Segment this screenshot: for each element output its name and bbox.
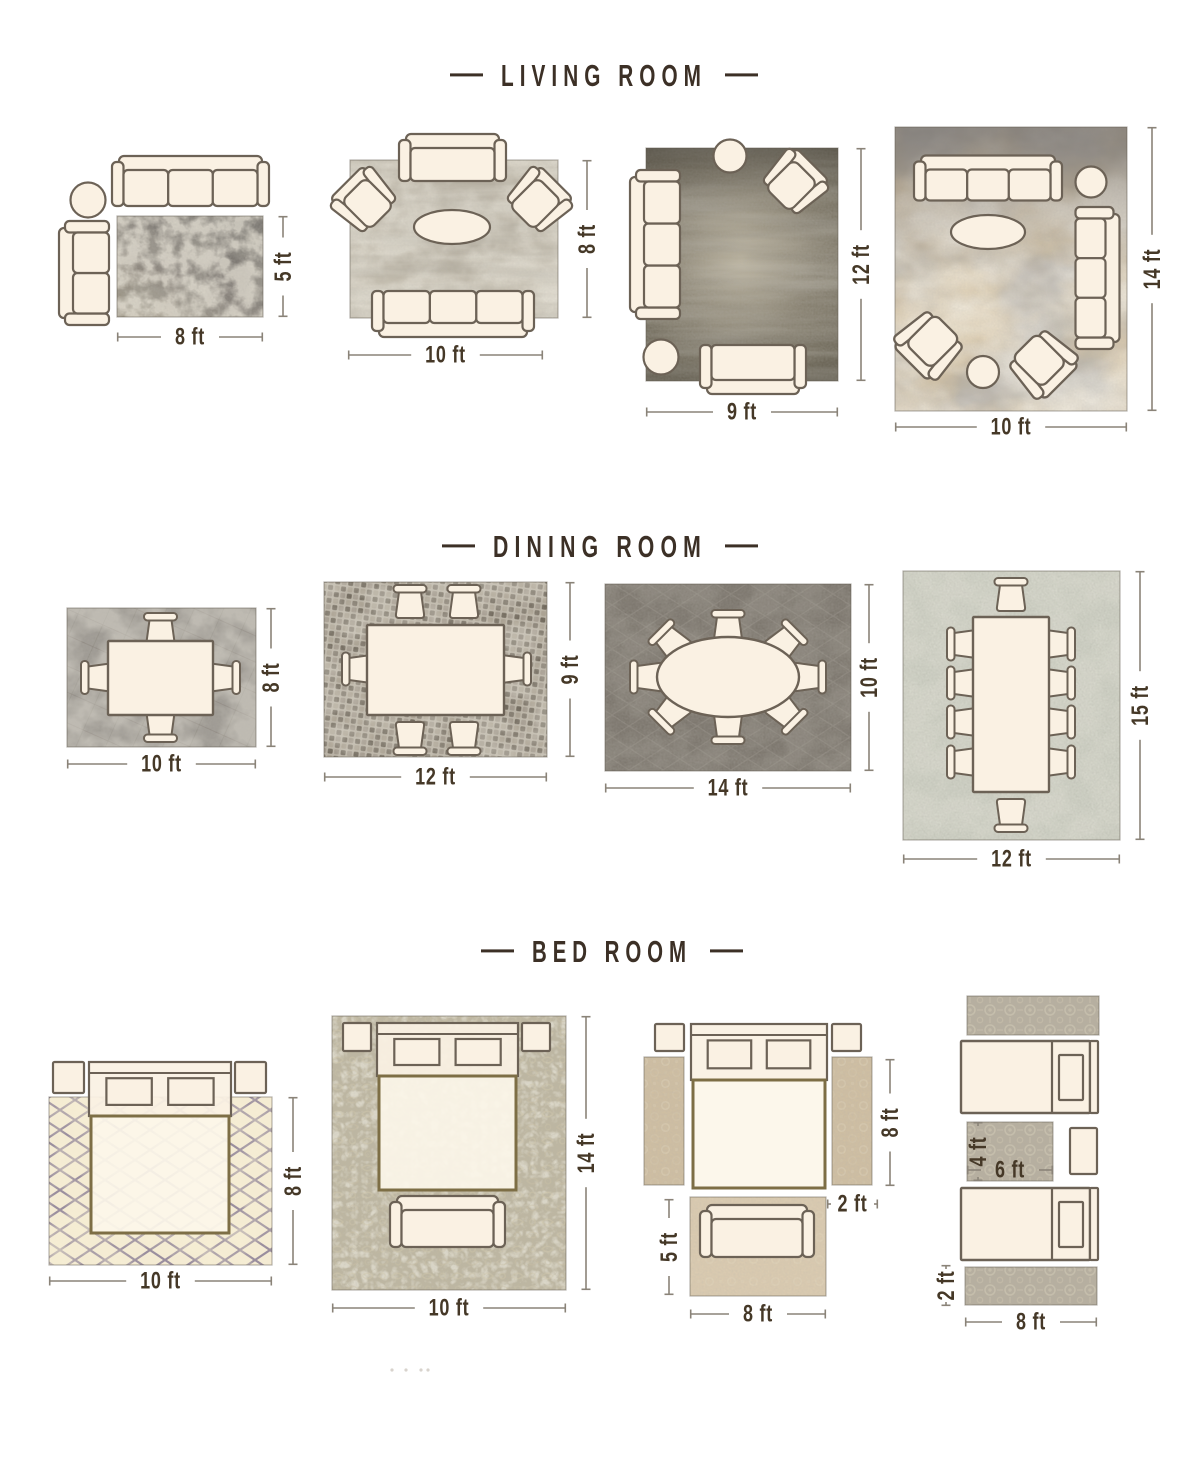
svg-text:10 ft: 10 ft bbox=[141, 751, 182, 777]
svg-text:8 ft: 8 ft bbox=[878, 1108, 904, 1138]
svg-text:8 ft: 8 ft bbox=[575, 224, 601, 254]
svg-text:10 ft: 10 ft bbox=[991, 414, 1032, 440]
svg-text:5 ft: 5 ft bbox=[657, 1232, 683, 1262]
svg-text:8 ft: 8 ft bbox=[281, 1166, 307, 1196]
svg-text:10 ft: 10 ft bbox=[857, 657, 883, 698]
svg-text:14 ft: 14 ft bbox=[1140, 249, 1166, 290]
svg-text:4 ft: 4 ft bbox=[966, 1137, 992, 1167]
svg-text:12 ft: 12 ft bbox=[849, 244, 875, 285]
svg-text:8 ft: 8 ft bbox=[175, 324, 205, 350]
svg-text:10 ft: 10 ft bbox=[429, 1295, 470, 1321]
svg-text:12 ft: 12 ft bbox=[415, 764, 456, 790]
svg-text:9 ft: 9 ft bbox=[727, 399, 757, 425]
svg-text:14 ft: 14 ft bbox=[574, 1133, 600, 1174]
svg-text:5 ft: 5 ft bbox=[271, 252, 297, 282]
svg-text:10 ft: 10 ft bbox=[140, 1268, 181, 1294]
svg-text:8 ft: 8 ft bbox=[259, 663, 285, 693]
svg-text:LIVING ROOM: LIVING ROOM bbox=[501, 58, 707, 93]
svg-text:10 ft: 10 ft bbox=[425, 342, 466, 368]
svg-text:8 ft: 8 ft bbox=[743, 1301, 773, 1327]
svg-text:2 ft: 2 ft bbox=[838, 1191, 868, 1217]
svg-text:15 ft: 15 ft bbox=[1128, 685, 1154, 726]
svg-text:BED ROOM: BED ROOM bbox=[532, 934, 692, 969]
svg-text:12 ft: 12 ft bbox=[991, 846, 1032, 872]
svg-text:2 ft: 2 ft bbox=[934, 1271, 960, 1301]
svg-text:DINING ROOM: DINING ROOM bbox=[493, 529, 707, 564]
svg-text:14 ft: 14 ft bbox=[708, 775, 749, 801]
svg-text:9 ft: 9 ft bbox=[558, 655, 584, 685]
svg-text:8 ft: 8 ft bbox=[1016, 1309, 1046, 1335]
svg-text:6 ft: 6 ft bbox=[995, 1157, 1025, 1183]
